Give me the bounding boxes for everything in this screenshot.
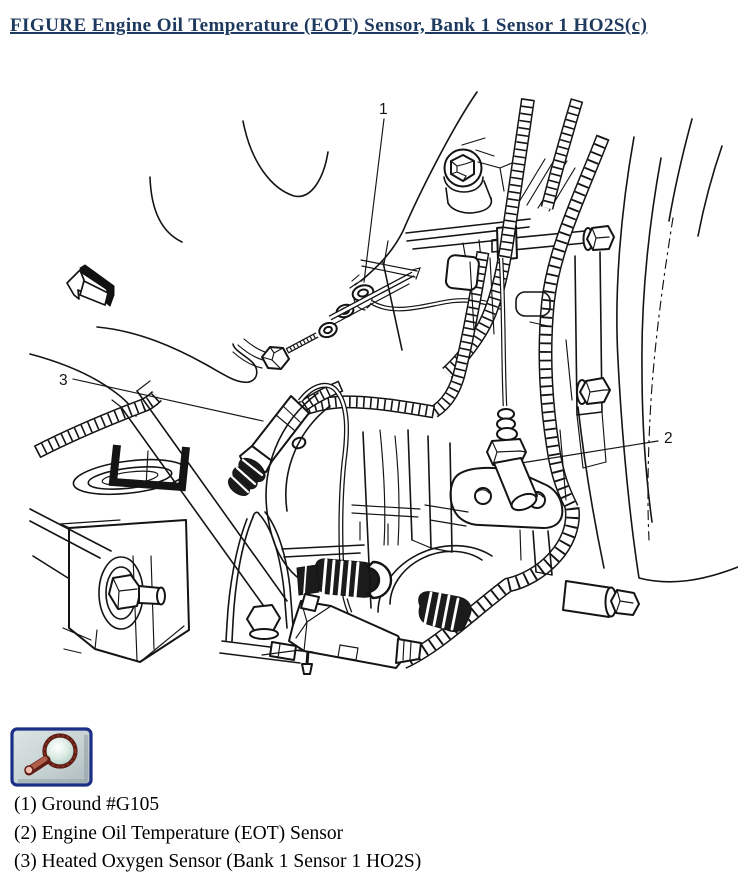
svg-text:2: 2 (664, 430, 673, 447)
svg-text:1: 1 (379, 101, 388, 118)
svg-text:3: 3 (59, 372, 68, 389)
